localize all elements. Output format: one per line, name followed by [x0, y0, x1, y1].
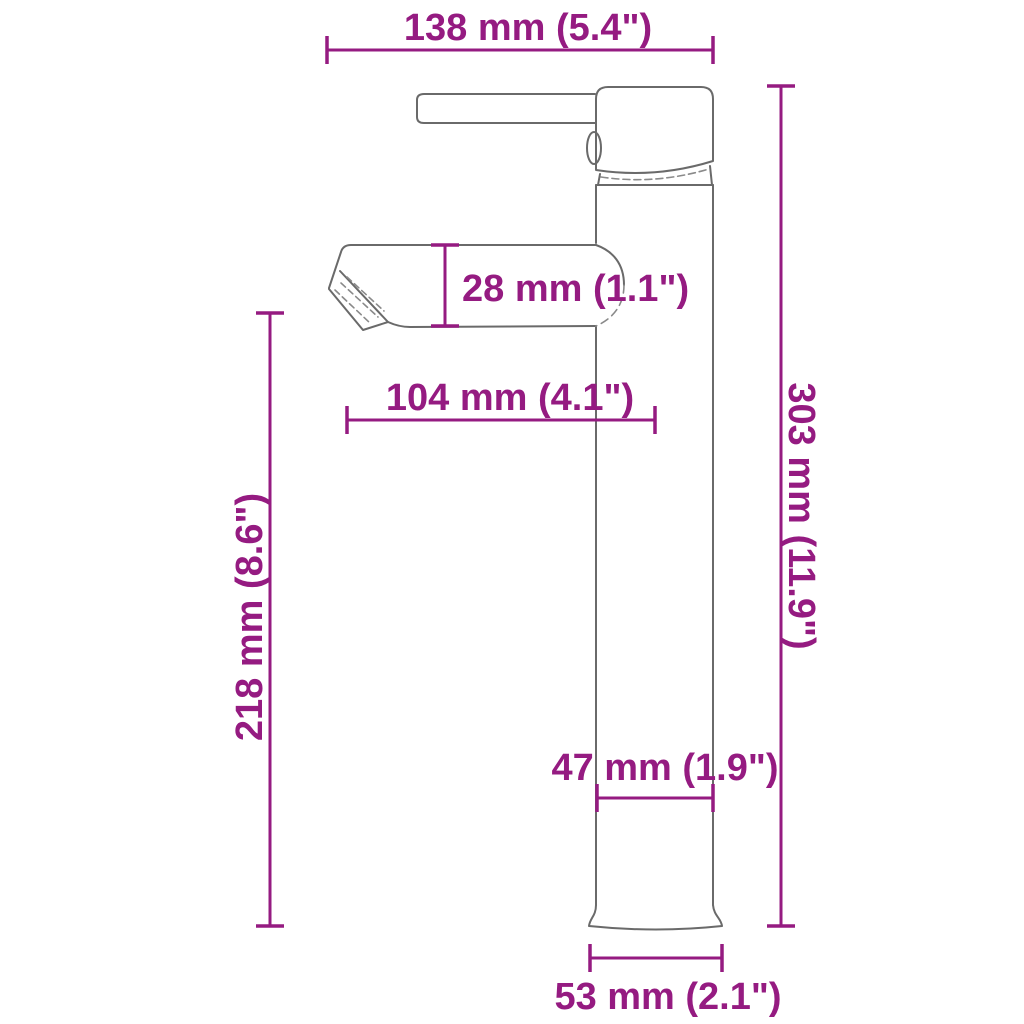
dimension-top-width: 138 mm (5.4"): [327, 7, 713, 64]
faucet-lever: [417, 94, 595, 123]
dimension-annotations: 138 mm (5.4") 28 mm (1.1") 104 mm (4.1")…: [229, 7, 822, 1018]
faucet-outline: [329, 87, 722, 930]
faucet-spout-bottom-edge: [388, 322, 596, 327]
faucet-base: [589, 905, 722, 930]
dimension-spout-reach-label: 104 mm (4.1"): [386, 377, 634, 419]
faucet-set-screw: [587, 132, 601, 164]
faucet-head-cap-shade-line: [601, 169, 709, 180]
dimension-total-height: 303 mm (11.9"): [767, 86, 822, 926]
faucet-head-cap: [596, 87, 713, 173]
dimension-spout-height: 28 mm (1.1"): [431, 245, 689, 326]
dimension-base-width-label: 53 mm (2.1"): [554, 976, 781, 1018]
dimension-spout-mount-height-label: 218 mm (8.6"): [229, 493, 271, 741]
dimension-spout-height-label: 28 mm (1.1"): [462, 268, 689, 310]
dimension-body-width: 47 mm (1.9"): [551, 747, 778, 812]
faucet-aerator: [329, 271, 388, 330]
dimension-spout-mount-height: 218 mm (8.6"): [229, 313, 284, 926]
faucet-dimension-diagram: 138 mm (5.4") 28 mm (1.1") 104 mm (4.1")…: [0, 0, 1024, 1024]
dimension-top-width-label: 138 mm (5.4"): [404, 7, 652, 49]
dimension-base-width: 53 mm (2.1"): [554, 944, 781, 1018]
faucet-collar: [596, 166, 713, 185]
faucet-aerator-hatching: [335, 277, 384, 324]
dimension-total-height-label: 303 mm (11.9"): [780, 382, 822, 649]
diagram-canvas: 138 mm (5.4") 28 mm (1.1") 104 mm (4.1")…: [0, 0, 1024, 1024]
dimension-spout-reach: 104 mm (4.1"): [347, 377, 655, 434]
dimension-body-width-label: 47 mm (1.9"): [551, 747, 778, 789]
